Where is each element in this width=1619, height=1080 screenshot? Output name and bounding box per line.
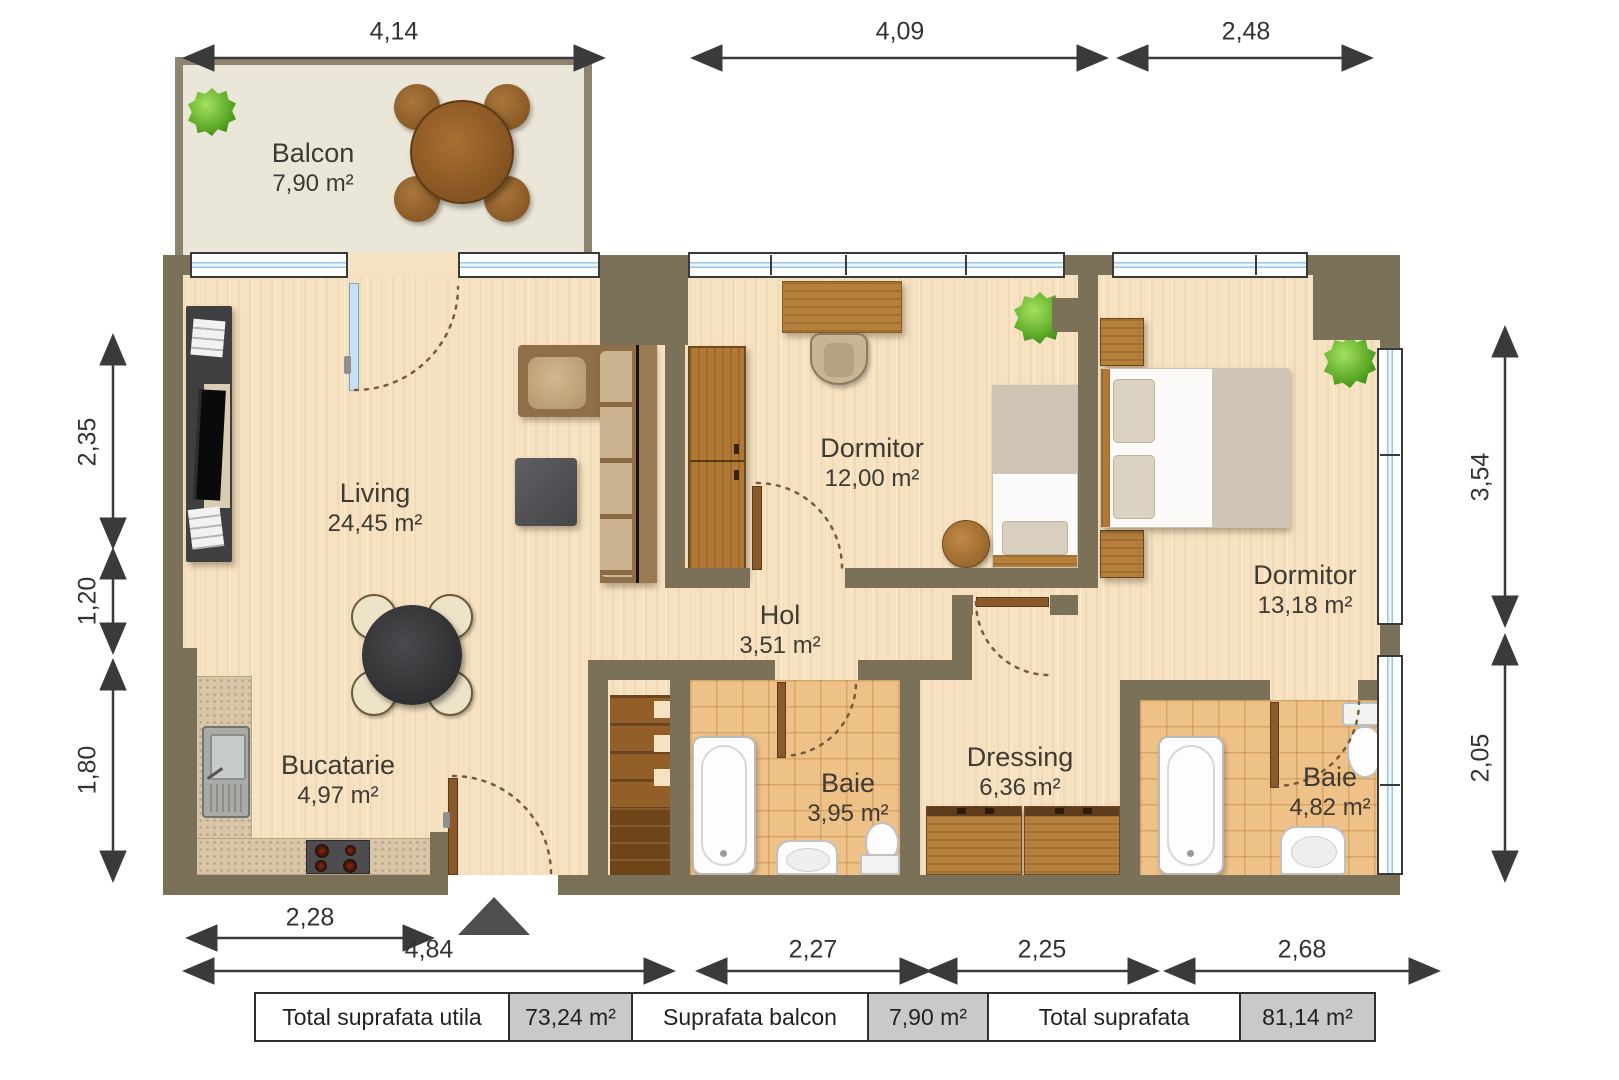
dim-bottom-2: 2,27 — [789, 936, 838, 965]
entrance-arrow-icon — [458, 897, 530, 935]
dim-top-3: 2,48 — [1222, 18, 1271, 47]
dim-top-2: 4,09 — [876, 18, 925, 47]
sofa-corner — [518, 345, 606, 417]
toilet — [860, 822, 900, 875]
sofa-cushion — [528, 357, 586, 409]
sink-bowl — [1291, 836, 1337, 868]
wall-bedroom1-bottom-b — [845, 568, 1098, 588]
burner — [343, 859, 357, 873]
bathtub — [692, 736, 756, 875]
window-mullion — [1255, 255, 1257, 275]
desk — [782, 281, 902, 333]
bathroom-sink — [1280, 826, 1346, 875]
stairs-notch — [654, 701, 670, 718]
double-bed — [1100, 368, 1288, 528]
bathtub — [1158, 736, 1224, 875]
dim-bottom-upper: 2,28 — [286, 904, 335, 933]
wall-corridor-stairs — [588, 660, 608, 875]
wardrobe-handle — [734, 444, 739, 454]
bed-pillow — [1002, 521, 1068, 555]
floor-plan-page: Balcon7,90 m² Living24,45 m² Bucatarie4,… — [0, 0, 1619, 1080]
books — [188, 506, 225, 550]
bath2-door-leaf — [1270, 702, 1279, 788]
cooktop — [306, 840, 370, 874]
burner — [315, 860, 327, 872]
dressing-closet — [1024, 806, 1120, 875]
dim-left-2: 1,20 — [74, 577, 103, 626]
label-bedroom1: Dormitor12,00 m² — [820, 433, 924, 493]
window-mullion — [770, 255, 772, 275]
wardrobe — [688, 346, 746, 576]
sink-bowl — [786, 848, 830, 872]
stairs — [610, 695, 670, 875]
wall-stairs-bath1 — [670, 680, 690, 875]
wall-dressing-bath2 — [1120, 700, 1140, 875]
wall-bath1-dressing — [900, 680, 920, 875]
summary-value: 7,90 m² — [867, 994, 987, 1040]
summary-value: 73,24 m² — [508, 994, 631, 1040]
summary-label: Total suprafata — [987, 994, 1239, 1040]
wall-living-bedroom1-column — [600, 275, 688, 345]
bed-headboard — [1101, 369, 1110, 527]
label-living: Living24,45 m² — [328, 478, 423, 538]
bed-pillow — [1113, 455, 1155, 519]
wall-corner-column-topright — [1313, 275, 1400, 340]
dim-left-1: 2,35 — [74, 418, 103, 467]
label-bedroom2: Dormitor13,18 m² — [1253, 560, 1357, 620]
closet-handle — [1083, 808, 1092, 814]
closet-handle — [1055, 808, 1064, 814]
wall-bath2-top-a — [1120, 680, 1270, 700]
living-window-1 — [190, 252, 348, 278]
dining-table — [362, 605, 462, 705]
nightstand-round — [942, 520, 990, 568]
label-balcony: Balcon7,90 m² — [272, 138, 355, 198]
bedroom1-door-leaf — [752, 486, 762, 570]
bath1-door-leaf — [777, 682, 786, 758]
dressing-door-leaf — [976, 597, 1049, 607]
wall-exterior-bottom-left — [163, 875, 448, 895]
bed-duvet — [1209, 369, 1290, 527]
wardrobe-handle — [734, 470, 739, 480]
closet-top-rail — [1025, 807, 1119, 816]
bed-blanket — [993, 386, 1077, 477]
nightstand — [1100, 530, 1144, 578]
wall-bedrooms-divider — [1078, 275, 1098, 588]
balcony-table — [410, 100, 514, 204]
window-mullion — [1380, 454, 1400, 456]
dim-top-1: 4,14 — [370, 18, 419, 47]
single-bed — [992, 385, 1078, 568]
bed-frame — [993, 555, 1077, 567]
bathroom-sink — [776, 840, 838, 875]
wall-hall-dressing-a — [952, 595, 973, 615]
kitchen-sink — [202, 726, 250, 818]
burner — [345, 845, 356, 856]
bedroom1-window — [688, 252, 1065, 278]
stairs-landing — [610, 808, 670, 875]
closet-top-rail — [927, 807, 1021, 816]
summary-value: 81,14 m² — [1239, 994, 1374, 1040]
dim-right-1: 3,54 — [1467, 453, 1496, 502]
stairs-notch — [654, 769, 670, 786]
label-bath2: Baie4,82 m² — [1289, 762, 1370, 822]
closet-handle — [957, 808, 966, 814]
balcony-wall-right — [584, 57, 592, 255]
label-bath1: Baie3,95 m² — [807, 768, 888, 828]
bed-pillow — [1113, 379, 1155, 443]
area-summary-table: Total suprafata utila 73,24 m² Suprafata… — [254, 992, 1376, 1042]
sofa-seats — [600, 351, 632, 577]
dim-bottom-1: 4,84 — [405, 936, 454, 965]
door-handle — [344, 356, 351, 374]
wall-exterior-bottom-right — [558, 875, 1400, 895]
desk-chair — [810, 333, 868, 385]
sofa-back — [636, 345, 657, 583]
bath2-window-right — [1377, 655, 1403, 875]
balcony-wall-left — [175, 57, 183, 255]
closet-handle — [985, 808, 994, 814]
balcony-door-opening — [348, 253, 458, 277]
wall-bath1-top-b — [858, 660, 972, 680]
summary-label: Total suprafata utila — [256, 994, 508, 1040]
wall-living-bedroom1 — [665, 345, 685, 568]
wall-bedroom1-bottom-a — [665, 568, 750, 588]
stairs-notch — [654, 735, 670, 752]
wall-hall-dressing-b — [1050, 595, 1078, 615]
label-hall: Hol3,51 m² — [739, 600, 820, 660]
nightstand — [1100, 318, 1144, 366]
dim-right-2: 2,05 — [1467, 734, 1496, 783]
door-handle — [443, 812, 450, 828]
coffee-table — [515, 458, 577, 526]
bedroom2-window-top — [1112, 252, 1308, 278]
books — [190, 319, 225, 358]
label-dressing: Dressing6,36 m² — [967, 742, 1074, 802]
balcony-door-leaf — [349, 283, 359, 391]
burner — [315, 844, 329, 858]
wall-bath1-top-a — [588, 660, 775, 680]
window-mullion — [1380, 784, 1400, 786]
dim-left-3: 1,80 — [74, 746, 103, 795]
bedroom2-window-right — [1377, 348, 1403, 625]
wall-bedrooms-divider-jog — [1052, 298, 1078, 332]
dim-bottom-3: 2,25 — [1018, 936, 1067, 965]
window-mullion — [965, 255, 967, 275]
living-window-2 — [458, 252, 600, 278]
wall-hall-dressing-stub — [952, 615, 972, 665]
dressing-closet — [926, 806, 1022, 875]
dim-bottom-4: 2,68 — [1278, 936, 1327, 965]
tv-icon — [193, 389, 226, 500]
window-mullion — [845, 255, 847, 275]
balcony-wall-top — [175, 57, 592, 65]
sofa — [600, 345, 654, 583]
sink-drainboard — [210, 784, 242, 812]
label-kitchen: Bucatarie4,97 m² — [281, 750, 395, 810]
tv-unit — [186, 306, 232, 562]
wardrobe-divider — [690, 460, 744, 462]
summary-label: Suprafata balcon — [631, 994, 867, 1040]
chair-seat — [824, 343, 854, 377]
wall-exterior-left-step — [183, 648, 197, 875]
toilet-tank — [860, 854, 900, 875]
wall-exterior-left — [163, 255, 183, 895]
wall-entry-stub — [430, 832, 448, 875]
